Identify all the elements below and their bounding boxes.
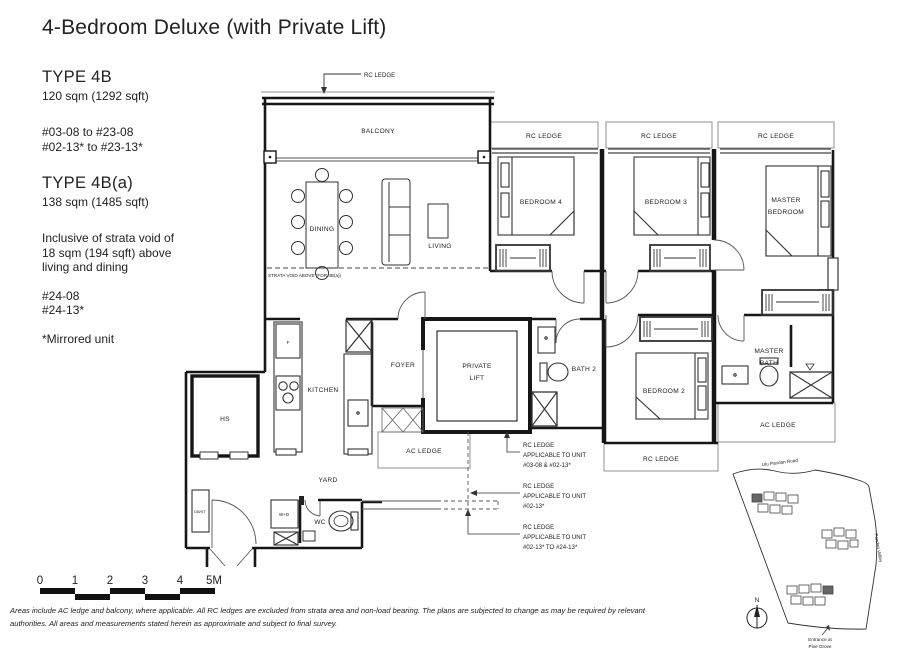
rc-note-3: RC LEDGE APPLICABLE TO UNIT #02-13* TO #…	[465, 509, 586, 551]
rc-ledge-label-master: RC LEDGE	[758, 133, 794, 140]
wc-room	[299, 496, 362, 543]
fridge-label: F	[287, 340, 290, 345]
private-lift-label-2: LIFT	[470, 375, 485, 382]
living-label: LIVING	[428, 243, 451, 250]
bedroom4-label: BEDROOM 4	[520, 199, 562, 206]
rc-note-1-l2: APPLICABLE TO UNIT	[523, 452, 586, 459]
entrance-label-2: Pine Grove	[809, 644, 832, 649]
rc-note-3-l2: APPLICABLE TO UNIT	[523, 534, 586, 541]
rc-note-2-l3: #02-13*	[523, 503, 545, 510]
disclaimer-line-2: authorities. All areas and measurements …	[10, 618, 890, 631]
floorplan-page: 4-Bedroom Deluxe (with Private Lift) TYP…	[0, 0, 900, 656]
road-label-top: Ulu Pandan Road	[762, 458, 799, 467]
yard-fixtures	[192, 490, 298, 545]
rc-note-3-l1: RC LEDGE	[523, 524, 554, 531]
rc-ledge-label-bed2: RC LEDGE	[643, 456, 679, 463]
ac-ledge-label-right: AC LEDGE	[760, 422, 796, 429]
bedroom-windows	[492, 149, 838, 290]
rc-note-2-l1: RC LEDGE	[523, 483, 554, 490]
rc-ledge-label-top: RC LEDGE	[364, 72, 395, 79]
rc-ledge-label-bed3: RC LEDGE	[641, 133, 677, 140]
entrance-label-1: Entrance at	[808, 637, 832, 642]
rc-note-1-l1: RC LEDGE	[523, 442, 554, 449]
building-cluster-2	[822, 528, 858, 549]
road-label-right: Pandan Valley	[873, 533, 883, 563]
strata-void-label: STRATA VOID ABOVE (FOR 4B(a))	[268, 273, 342, 278]
building-cluster-1	[752, 492, 798, 514]
rc-note-1-l3: #03-08 & #02-13*	[523, 462, 571, 469]
scale-5m: 5M	[206, 575, 222, 587]
master-bedroom-label-2: BEDROOM	[768, 209, 804, 216]
kitchen-label: KITCHEN	[307, 387, 338, 394]
bedroom2-label: BEDROOM 2	[643, 388, 685, 395]
washer-dryer-label: W+D	[279, 512, 290, 517]
disclaimer-line-1: Areas include AC ledge and balcony, wher…	[10, 605, 890, 618]
rc-ledge-dashed	[362, 432, 498, 509]
wc-label: WC	[314, 519, 326, 526]
yard-label: YARD	[318, 477, 337, 484]
rc-note-2-l2: APPLICABLE TO UNIT	[523, 493, 586, 500]
bath2-fixtures	[532, 327, 568, 426]
db-st-label: DB/ST	[194, 509, 206, 514]
rc-ledge-label-bed4: RC LEDGE	[526, 133, 562, 140]
private-lift-label-1: PRIVATE	[462, 363, 492, 370]
master-bath-label-1: MASTER	[754, 348, 783, 355]
hs-label: HS	[220, 416, 230, 423]
master-bedroom-label-1: MASTER	[771, 197, 800, 204]
dining-set	[292, 169, 353, 280]
north-label: N	[755, 597, 760, 604]
scale-bar: 0 1 2 3 4 5M	[37, 575, 222, 600]
balcony-label: BALCONY	[361, 128, 395, 135]
ac-ledge-label-mid: AC LEDGE	[406, 448, 442, 455]
disclaimer: Areas include AC ledge and balcony, wher…	[10, 605, 890, 630]
foyer-label: FOYER	[391, 362, 415, 369]
master-bath-label-2: BATH	[760, 360, 778, 367]
rc-note-1: RC LEDGE APPLICABLE TO UNIT #03-08 & #02…	[504, 431, 586, 469]
scale-4: 4	[177, 575, 184, 587]
scale-1: 1	[72, 575, 78, 587]
balcony-slider	[264, 151, 490, 163]
scale-0: 0	[37, 575, 43, 587]
building-cluster-3	[787, 584, 833, 605]
floor-plan-drawing: RC LEDGE RC LEDGE RC LEDGE RC LEDGE AC L…	[0, 0, 900, 656]
rc-note-3-l3: #02-13* TO #24-13*	[523, 544, 578, 551]
thick-walls	[602, 149, 714, 443]
bath2-label: BATH 2	[572, 366, 596, 373]
scale-3: 3	[142, 575, 148, 587]
scale-2: 2	[107, 575, 113, 587]
rc-ledge-callout-top: RC LEDGE	[321, 72, 395, 94]
foyer-hatch-strip	[382, 408, 423, 432]
bedroom3-label: BEDROOM 3	[645, 199, 687, 206]
rc-note-2: RC LEDGE APPLICABLE TO UNIT #02-13*	[470, 483, 586, 510]
shaft-box	[346, 320, 372, 352]
dining-label: DINING	[310, 226, 335, 233]
living-furniture	[382, 179, 448, 265]
